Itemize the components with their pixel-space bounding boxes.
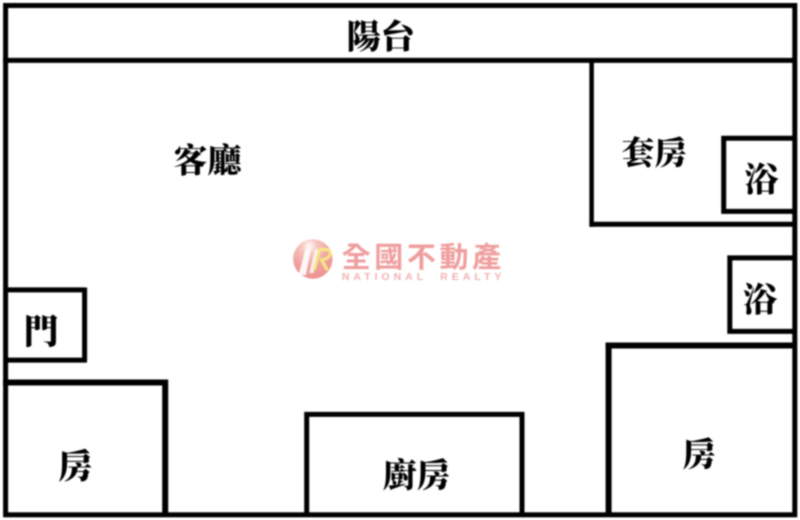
svg-text:NATIONAL REALTY: NATIONAL REALTY: [342, 271, 506, 283]
